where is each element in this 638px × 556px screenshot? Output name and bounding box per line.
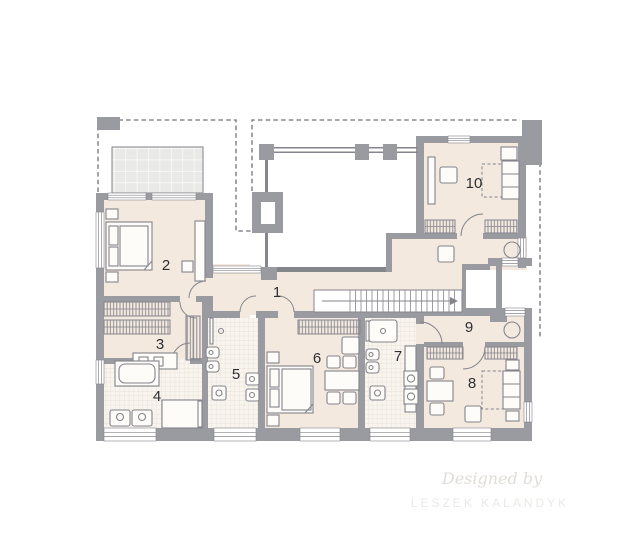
shower (162, 400, 202, 428)
desk (428, 157, 435, 204)
nightstand (506, 360, 519, 370)
chair (430, 367, 444, 379)
sofa (502, 161, 519, 199)
washbasin (110, 410, 130, 426)
side-table (501, 147, 517, 160)
washbasin (212, 386, 226, 400)
stool (465, 406, 481, 422)
terrace-tiled-deck (112, 147, 203, 193)
room-8-label: 8 (468, 375, 476, 392)
watermark-name-line: LESZEK KALANDYK (411, 496, 569, 510)
shower-screen (366, 321, 369, 341)
nightstand (267, 352, 279, 363)
chimney-core (252, 152, 283, 280)
room-3-wardrobe-side (186, 316, 200, 360)
washing-machine (404, 371, 418, 386)
room-7-label: 7 (394, 348, 402, 365)
table (427, 381, 453, 401)
chair (343, 392, 356, 404)
room-9-label: 9 (465, 319, 473, 336)
pillow (109, 226, 118, 245)
room-8-wardrobe-right (485, 347, 517, 359)
staircase (314, 290, 462, 312)
sofa (503, 371, 520, 409)
room-8-wardrobe-left (427, 347, 463, 359)
void-parapet-wall (277, 267, 386, 272)
room-5-label: 5 (232, 366, 240, 383)
stool (438, 246, 454, 262)
shower-screen (210, 318, 213, 344)
room-3-label: 3 (156, 336, 164, 353)
room-1-label: 1 (273, 284, 281, 301)
washbasin (370, 386, 385, 400)
floor-plan-drawing: 1 2 3 4 5 6 7 8 9 10 Designed by LESZEK … (0, 0, 638, 556)
chair (343, 356, 356, 368)
room-10-wardrobe-right (485, 220, 517, 233)
bidet (206, 361, 219, 372)
room-3-wardrobe-mid (104, 320, 170, 334)
room-6-wardrobe (298, 320, 360, 334)
watermark-script-line: Designed by (441, 469, 543, 488)
nightstand (106, 209, 118, 219)
room-10-wardrobe-left (425, 220, 455, 233)
chair (327, 356, 340, 368)
pillow (270, 389, 279, 407)
floor-plan-canvas: 1 2 3 4 5 6 7 8 9 10 Designed by LESZEK … (0, 0, 638, 556)
pillow (109, 247, 118, 266)
roof-chimney-block (97, 117, 120, 130)
room-3-wardrobe-top (104, 302, 170, 316)
pillow (270, 369, 279, 387)
shower-tray (369, 320, 397, 342)
nightstand (267, 415, 279, 426)
wall-hung-fixture (246, 389, 259, 401)
northeast-wall-block (522, 120, 542, 165)
room-6-label: 6 (313, 350, 321, 367)
armchair (440, 167, 457, 183)
designer-watermark: Designed by LESZEK KALANDYK (411, 469, 569, 510)
table (325, 371, 359, 390)
wardrobe-cabinet (195, 221, 205, 281)
room-10-label: 10 (466, 175, 483, 192)
room-2-label: 2 (162, 257, 170, 274)
toilet (206, 347, 219, 358)
void-window-wall (259, 144, 418, 160)
dryer (404, 389, 418, 404)
chair (430, 403, 444, 415)
bidet (366, 362, 379, 373)
gallery-balustrade (213, 266, 261, 273)
nightstand (506, 411, 519, 421)
chair (327, 392, 340, 404)
room-4-label: 4 (153, 388, 161, 405)
stool (182, 261, 193, 272)
nightstand (106, 272, 118, 282)
washbasin (132, 410, 152, 426)
toilet (366, 349, 379, 360)
armchair (342, 337, 359, 354)
wall-hung-fixture (246, 373, 259, 385)
